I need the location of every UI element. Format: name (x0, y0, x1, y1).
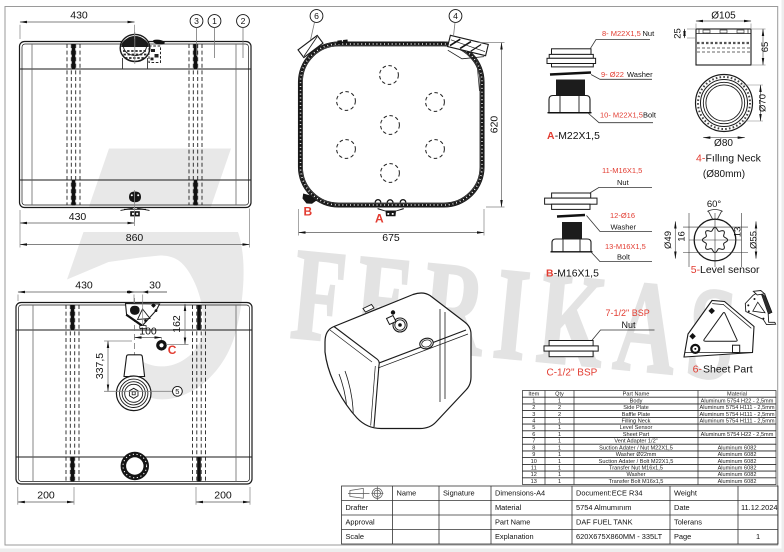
svg-text:Fıllıng Neck: Fıllıng Neck (706, 153, 762, 165)
svg-text:3: 3 (532, 412, 535, 418)
svg-text:Aluminum 5754 H111 - 2,5mm: Aluminum 5754 H111 - 2,5mm (699, 418, 774, 424)
svg-text:Approval: Approval (346, 518, 376, 527)
svg-text:Material: Material (495, 503, 522, 512)
svg-text:Explanation: Explanation (495, 532, 534, 541)
svg-text:Level Sensor: Level Sensor (620, 425, 653, 431)
svg-text:1: 1 (558, 452, 561, 458)
svg-text:(Ø80mm): (Ø80mm) (703, 169, 745, 180)
svg-text:430: 430 (75, 279, 93, 291)
svg-text:Aluminum 6082: Aluminum 6082 (718, 465, 757, 471)
svg-text:4-: 4- (696, 153, 706, 165)
svg-text:2: 2 (558, 405, 561, 411)
svg-text:Aluminum 6082: Aluminum 6082 (718, 445, 757, 451)
svg-text:Aluminum 5754 H111 - 2,5mm: Aluminum 5754 H111 - 2,5mm (699, 412, 774, 418)
svg-text:10- M22X1,5: 10- M22X1,5 (600, 111, 643, 120)
svg-text:65: 65 (760, 42, 771, 53)
svg-text:25: 25 (673, 28, 684, 39)
svg-text:1: 1 (212, 16, 217, 26)
svg-text:30: 30 (149, 279, 161, 291)
svg-text:-M16X1,5: -M16X1,5 (554, 269, 599, 280)
svg-text:4: 4 (532, 418, 535, 424)
svg-text:675: 675 (382, 232, 400, 244)
svg-text:12-Ø16: 12-Ø16 (610, 211, 635, 220)
svg-text:A: A (547, 131, 555, 142)
svg-text:B: B (304, 205, 313, 219)
svg-text:200: 200 (37, 489, 55, 501)
svg-text:162: 162 (171, 315, 183, 333)
svg-text:16: 16 (677, 231, 688, 242)
svg-text:Side Plate: Side Plate (623, 405, 649, 411)
svg-text:Transfer Nut M16x1,5: Transfer Nut M16x1,5 (609, 465, 663, 471)
svg-text:2: 2 (558, 412, 561, 418)
svg-text:Ø49: Ø49 (663, 231, 674, 249)
svg-text:-M22X1,5: -M22X1,5 (555, 131, 600, 142)
svg-text:1: 1 (558, 425, 561, 431)
svg-text:Bolt: Bolt (643, 111, 657, 120)
svg-text:7: 7 (532, 439, 535, 445)
svg-text:11.12.2024: 11.12.2024 (741, 503, 777, 512)
svg-text:337,5: 337,5 (94, 353, 106, 379)
svg-text:Nut: Nut (617, 178, 630, 187)
svg-text:1: 1 (558, 439, 561, 445)
svg-text:11: 11 (531, 465, 537, 471)
svg-text:1: 1 (532, 398, 535, 404)
svg-text:Suction Adater / Bolt M22X1,5: Suction Adater / Bolt M22X1,5 (599, 459, 674, 465)
svg-text:Name: Name (397, 489, 417, 498)
svg-text:8: 8 (532, 445, 535, 451)
svg-text:6-: 6- (693, 364, 703, 376)
svg-text:1: 1 (558, 445, 561, 451)
svg-text:Dimensions-A4: Dimensions-A4 (495, 489, 545, 498)
svg-text:1: 1 (558, 465, 561, 471)
svg-text:Scale: Scale (346, 532, 365, 541)
svg-text:Vent Adapter 1/2": Vent Adapter 1/2" (614, 439, 657, 445)
svg-text:Weight: Weight (674, 489, 697, 498)
svg-text:5: 5 (175, 387, 179, 396)
svg-text:Body: Body (630, 398, 643, 404)
svg-text:Washer: Washer (611, 223, 637, 232)
svg-text:Date: Date (674, 503, 690, 512)
svg-text:2: 2 (241, 16, 246, 26)
svg-text:620X675X860MM - 335LT: 620X675X860MM - 335LT (576, 532, 663, 541)
svg-text:Page: Page (674, 532, 691, 541)
svg-text:Sheet Part: Sheet Part (623, 432, 650, 438)
svg-text:6: 6 (532, 432, 535, 438)
svg-text:Ø105: Ø105 (711, 11, 736, 22)
svg-text:430: 430 (70, 10, 88, 22)
svg-text:Aluminum 5754 H22 - 2,5mm: Aluminum 5754 H22 - 2,5mm (701, 432, 774, 438)
svg-text:Part Name: Part Name (495, 518, 530, 527)
svg-text:7-1/2" BSP: 7-1/2" BSP (606, 308, 650, 318)
svg-text:1: 1 (558, 432, 561, 438)
svg-text:13: 13 (531, 479, 537, 485)
svg-text:5754 Almumınım: 5754 Almumınım (576, 503, 631, 512)
svg-text:2: 2 (532, 405, 535, 411)
svg-text:1: 1 (756, 532, 760, 541)
svg-text:200: 200 (214, 489, 232, 501)
svg-text:11-M16X1,5: 11-M16X1,5 (602, 166, 642, 175)
svg-text:9- Ø22: 9- Ø22 (601, 70, 624, 79)
svg-text:4: 4 (453, 11, 458, 21)
svg-text:Aluminum 6082: Aluminum 6082 (718, 459, 757, 465)
svg-text:Aluminum 5754 H111 - 2,5mm: Aluminum 5754 H111 - 2,5mm (699, 405, 774, 411)
svg-text:620: 620 (489, 116, 501, 134)
svg-text:13-M16X1,5: 13-M16X1,5 (605, 242, 646, 251)
svg-text:860: 860 (126, 232, 144, 244)
svg-text:Ø70: Ø70 (758, 94, 769, 112)
svg-text:Ø80: Ø80 (714, 138, 733, 149)
svg-text:B: B (546, 269, 554, 280)
svg-text:Item: Item (528, 392, 539, 398)
svg-text:Suction Adater / Nut M22X1,5: Suction Adater / Nut M22X1,5 (599, 445, 673, 451)
svg-text:1: 1 (558, 418, 561, 424)
svg-text:5: 5 (532, 425, 535, 431)
svg-text:1: 1 (558, 479, 561, 485)
svg-text:8- M22X1,5: 8- M22X1,5 (602, 29, 641, 38)
svg-text:12: 12 (531, 472, 537, 478)
svg-text:C: C (168, 343, 177, 357)
svg-text:13: 13 (732, 227, 743, 238)
svg-text:Nut: Nut (622, 320, 637, 330)
svg-text:Document:ECE R34: Document:ECE R34 (576, 489, 643, 498)
svg-text:Aluminum 6082: Aluminum 6082 (718, 472, 757, 478)
svg-text:Aluminum 5754 H22 - 2,5mm: Aluminum 5754 H22 - 2,5mm (701, 398, 774, 404)
svg-text:Qty: Qty (555, 392, 564, 398)
svg-text:100: 100 (139, 326, 157, 338)
svg-text:Washer: Washer (627, 70, 653, 79)
svg-text:1: 1 (558, 472, 561, 478)
svg-text:6: 6 (314, 11, 319, 21)
svg-text:Ø55: Ø55 (749, 231, 760, 249)
svg-text:Signature: Signature (443, 489, 475, 498)
svg-text:3: 3 (194, 16, 199, 26)
svg-text:Filling Neck: Filling Neck (622, 418, 651, 424)
svg-text:Washer Ø22mm: Washer Ø22mm (616, 452, 657, 458)
svg-text:Part Name: Part Name (623, 392, 650, 398)
svg-text:430: 430 (69, 211, 87, 223)
svg-text:Aluminum 6082: Aluminum 6082 (718, 452, 757, 458)
svg-text:1: 1 (558, 459, 561, 465)
svg-text:9: 9 (532, 452, 535, 458)
svg-text:Material: Material (727, 392, 747, 398)
svg-text:Drafter: Drafter (346, 503, 369, 512)
svg-text:1: 1 (558, 398, 561, 404)
svg-text:DAF FUEL TANK: DAF FUEL TANK (576, 518, 633, 527)
svg-text:A: A (375, 212, 384, 226)
svg-text:Bolt: Bolt (617, 253, 631, 262)
svg-text:Baffle Plate: Baffle Plate (622, 412, 651, 418)
svg-text:10: 10 (531, 459, 537, 465)
svg-text:Nut: Nut (643, 29, 656, 38)
svg-text:Sheet Part: Sheet Part (703, 364, 753, 376)
svg-text:60°: 60° (707, 199, 722, 210)
svg-text:C-1/2" BSP: C-1/2" BSP (547, 368, 598, 379)
svg-text:Aluminum 6082: Aluminum 6082 (718, 479, 757, 485)
svg-text:Tolerans: Tolerans (674, 518, 702, 527)
svg-text:Transfer Bolt M16x1,5: Transfer Bolt M16x1,5 (609, 479, 664, 485)
svg-text:Washer: Washer (626, 472, 645, 478)
svg-text:Level sensor: Level sensor (700, 264, 760, 276)
